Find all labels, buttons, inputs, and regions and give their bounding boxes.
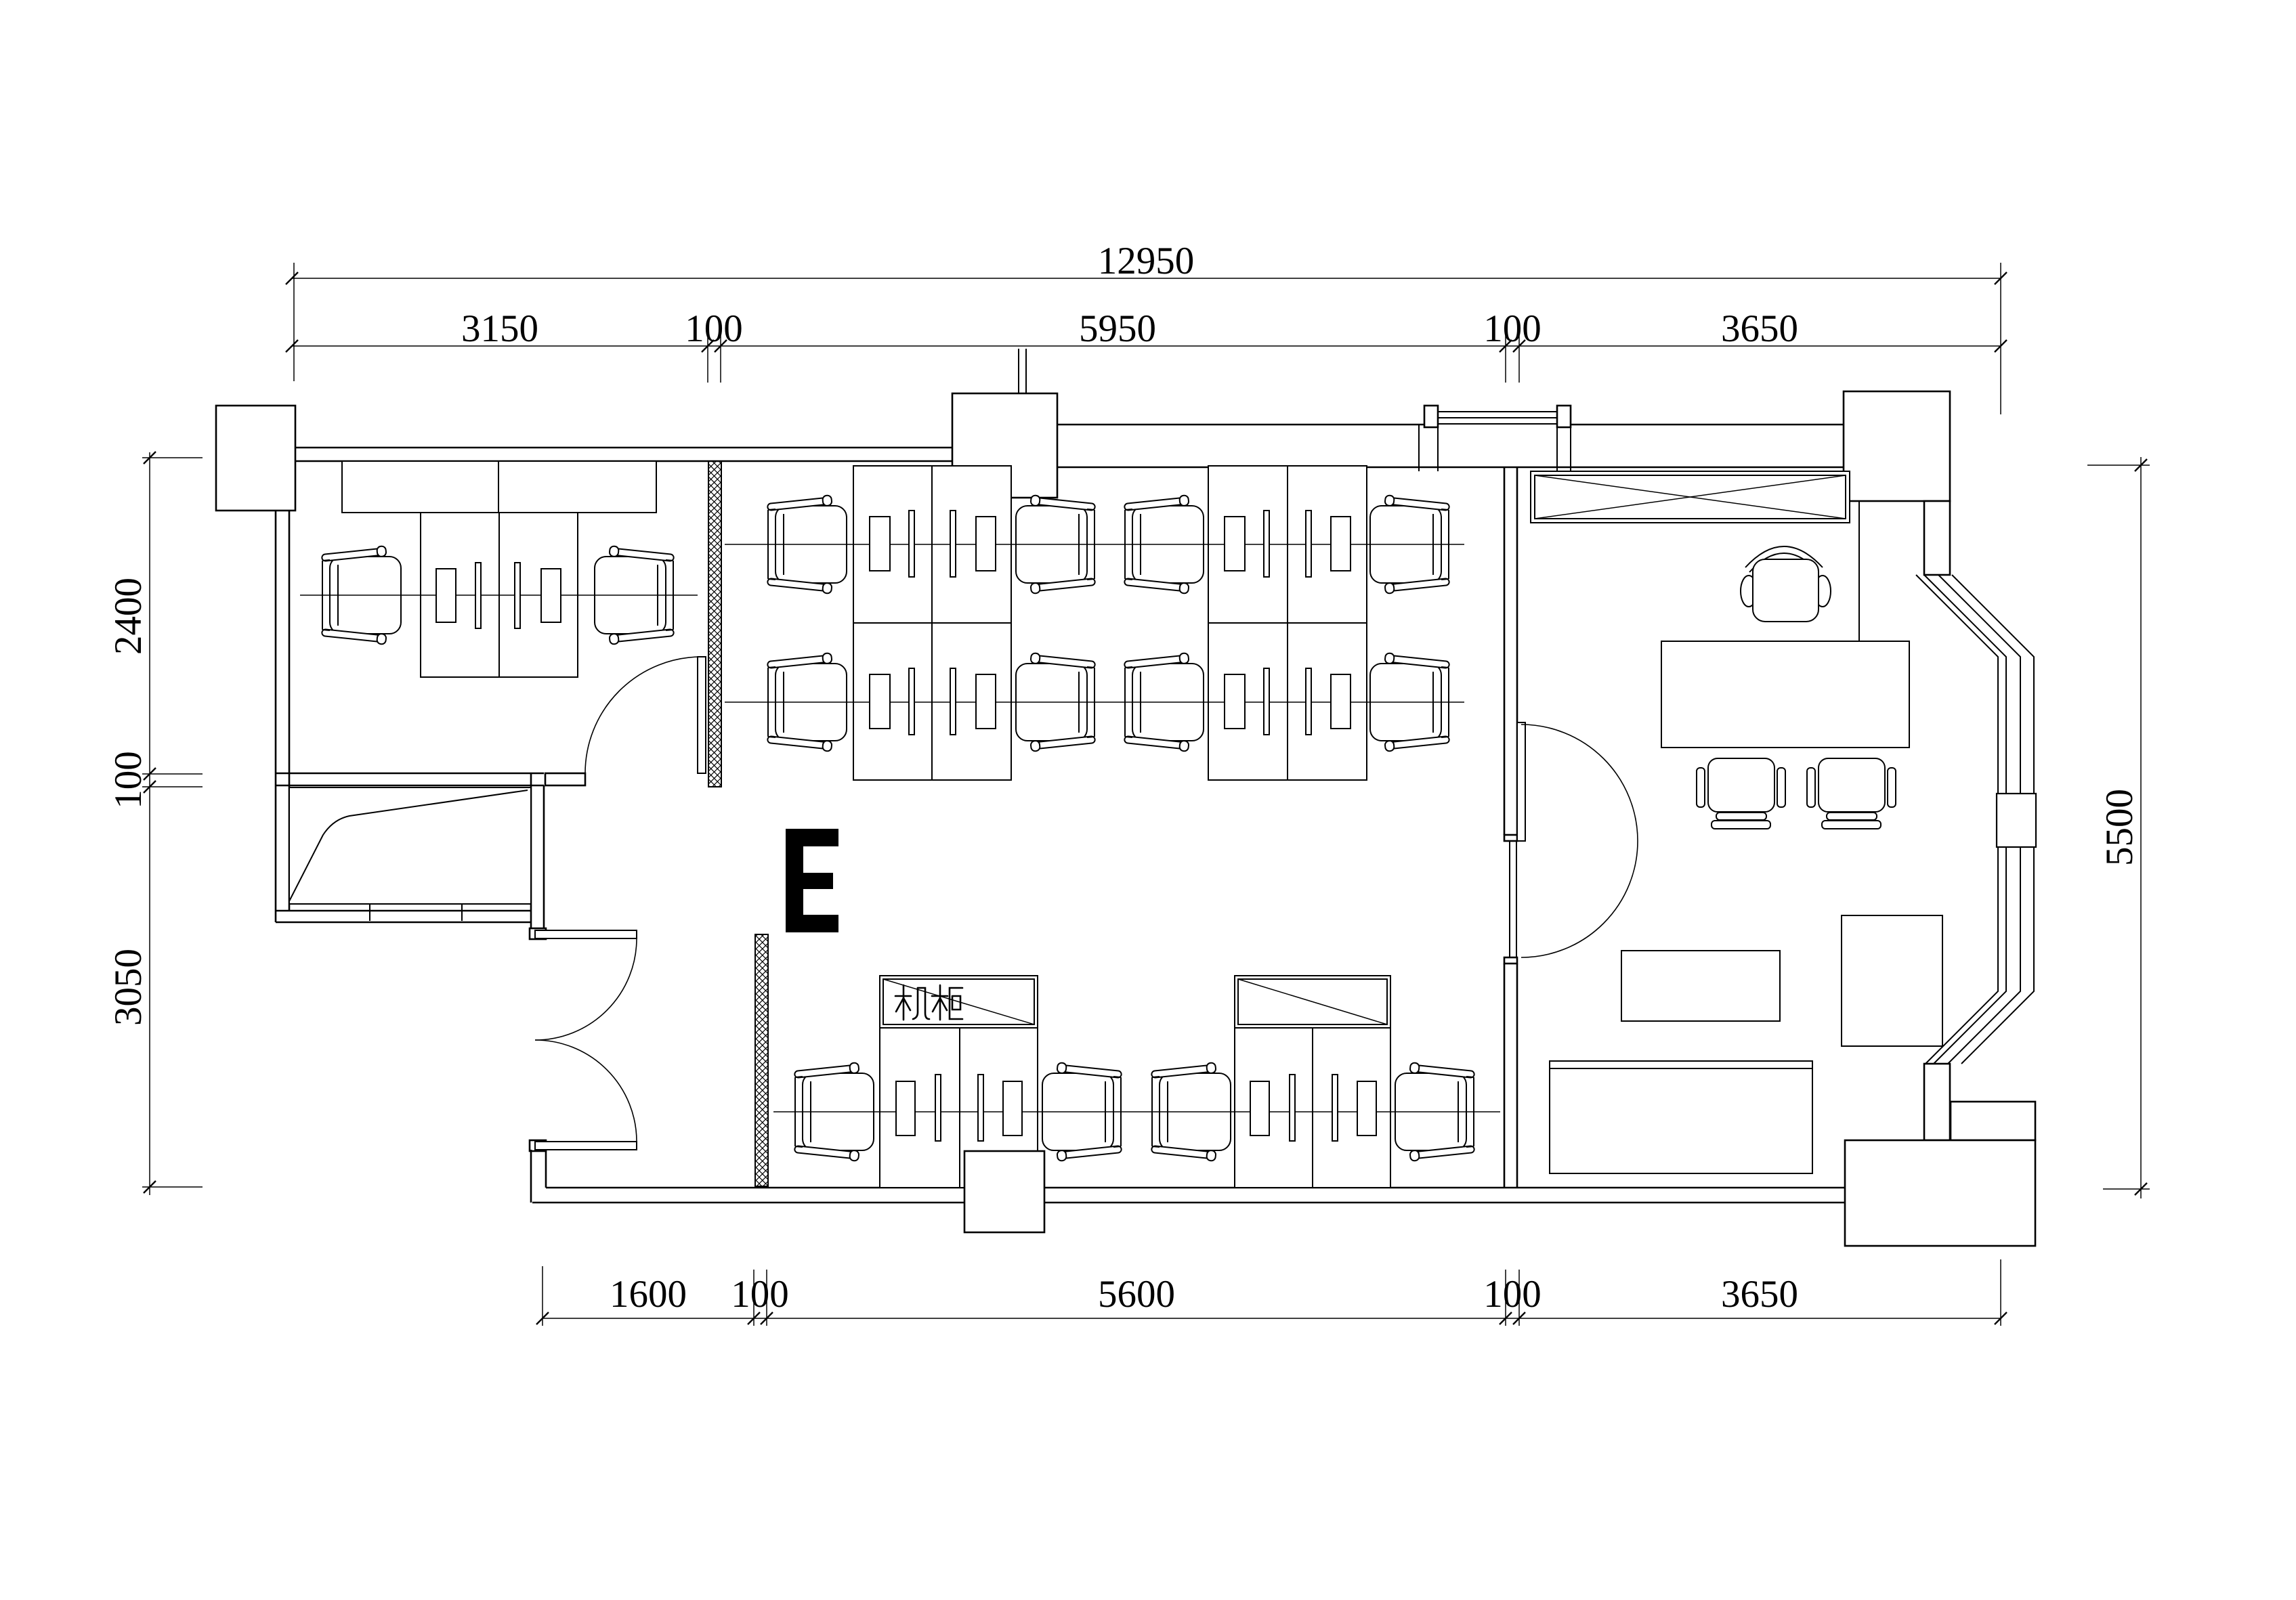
svg-text:100: 100 [685,307,743,350]
svg-text:12950: 12950 [1098,240,1195,282]
svg-text:5600: 5600 [1098,1273,1175,1316]
svg-text:5950: 5950 [1079,307,1156,350]
svg-text:2400: 2400 [107,578,150,655]
svg-text:100: 100 [731,1273,789,1316]
svg-text:5500: 5500 [2098,789,2141,866]
svg-text:3650: 3650 [1721,307,1798,350]
svg-text:1600: 1600 [610,1273,687,1316]
svg-text:3150: 3150 [461,307,538,350]
svg-text:100: 100 [1483,307,1542,350]
svg-text:100: 100 [1483,1273,1542,1316]
svg-text:100: 100 [107,751,150,809]
svg-text:3650: 3650 [1721,1273,1798,1316]
svg-text:3050: 3050 [107,949,150,1026]
